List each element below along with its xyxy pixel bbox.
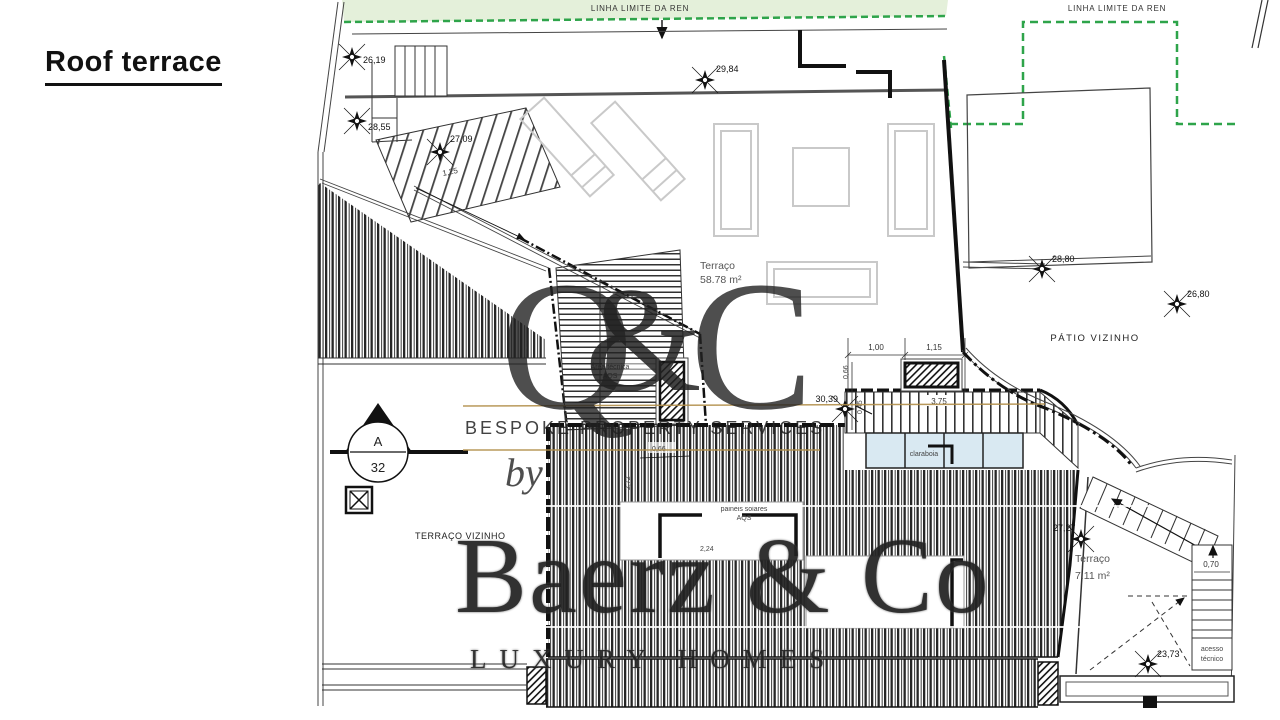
watermark-brand: Baerz & Co xyxy=(455,517,991,636)
acesso-label-2: técnico xyxy=(1201,656,1223,663)
elevation-label: 26,80 xyxy=(1187,289,1210,299)
coffee-table xyxy=(793,148,849,206)
watermark-services: BESPOKE PROPERTY SERVICES xyxy=(465,418,825,438)
elevation-label: 26,19 xyxy=(363,55,386,65)
dim-0-70: 0,70 xyxy=(1203,560,1219,569)
watermark-tagline: LUXURY HOMES xyxy=(470,644,837,674)
elevation-label: 27,09 xyxy=(450,134,473,144)
patio-vizinho-label: PÁTIO VIZINHO xyxy=(1050,333,1139,344)
elevation-label: 29,84 xyxy=(716,64,739,74)
acesso-label-1: acesso xyxy=(1201,646,1223,653)
claraboia-label: claraboia xyxy=(910,451,939,458)
watermark-ampersand: & xyxy=(585,257,702,423)
elevation-label: 28,80 xyxy=(1052,254,1075,264)
terrace-small-area: 7.11 m² xyxy=(1075,570,1110,582)
sofa-left xyxy=(714,124,758,236)
dim-0-66a: 0,66 xyxy=(843,365,850,379)
dim-1-00: 1,00 xyxy=(868,343,884,352)
sun-lounger xyxy=(591,102,684,201)
elevation-label: 30,39 xyxy=(815,394,838,404)
section-letter: A xyxy=(374,434,383,449)
elevation-label: 28,55 xyxy=(368,122,391,132)
elevation-label: 23,73 xyxy=(1157,649,1180,659)
elevation-label: 27,27 xyxy=(1053,523,1076,533)
terrace-small-name: Terraço xyxy=(1075,553,1110,565)
ren-limit-right: LINHA LIMITE DA REN xyxy=(950,0,1268,124)
ren-label-right: LINHA LIMITE DA REN xyxy=(1068,4,1166,13)
ren-label-left: LINHA LIMITE DA REN xyxy=(591,4,689,13)
dim-2-72: 2,72 xyxy=(625,476,632,490)
skylight-zone: 3,75 claraboia xyxy=(845,359,1078,468)
sofa-right xyxy=(888,124,934,236)
neighbour-roof xyxy=(963,88,1152,269)
section-number: 32 xyxy=(371,460,385,475)
roof-terrace-plan-page: Roof terrace xyxy=(0,0,1280,720)
watermark-by: by xyxy=(505,450,543,495)
section-marker: A 32 xyxy=(330,403,468,513)
dim-1-15: 1,15 xyxy=(926,343,942,352)
corner-fan-hatch xyxy=(1038,662,1058,705)
paineis-label-1: painéis solares xyxy=(721,506,768,513)
acesso-tecnico-box xyxy=(1192,638,1232,670)
floor-plan-drawing: LINHA LIMITE DA REN LINHA LIMITE DA REN xyxy=(0,0,1280,720)
